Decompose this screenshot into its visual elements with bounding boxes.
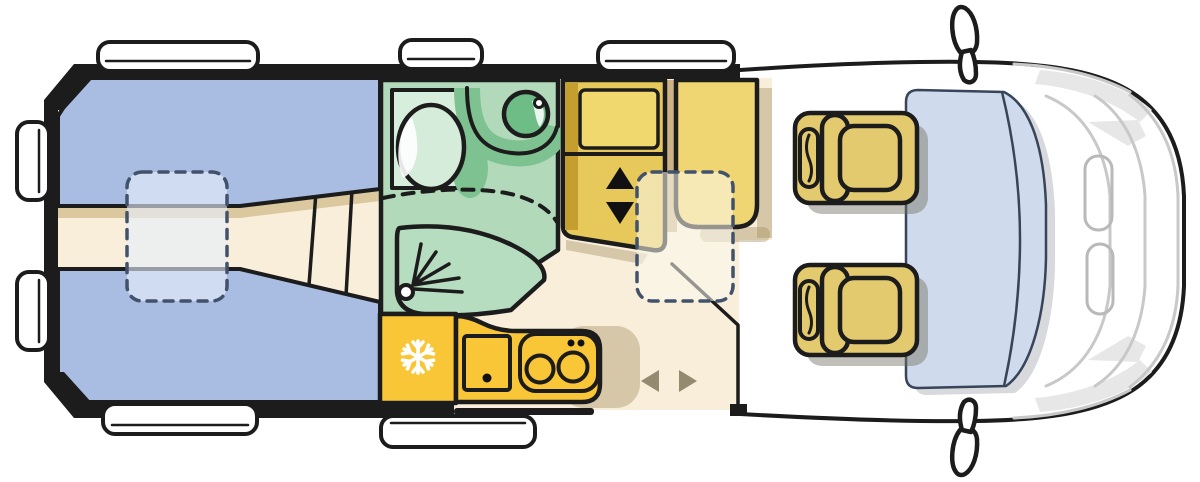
window-rear-left xyxy=(17,122,49,200)
mirror-top xyxy=(952,7,977,54)
hood-line xyxy=(1046,96,1110,386)
headlight-right xyxy=(1085,156,1112,230)
seat-cushion xyxy=(840,126,900,190)
window-rear-right xyxy=(17,272,49,350)
shower-head-icon xyxy=(399,285,413,299)
tall-locker-side xyxy=(565,83,578,230)
sliding-door-rail xyxy=(454,408,594,415)
washbasin-drain xyxy=(535,99,544,108)
window-top-wardrobe xyxy=(598,42,734,71)
window-bottom-rear xyxy=(103,404,257,434)
floor-plan xyxy=(0,0,1200,482)
mirror-top-arm xyxy=(960,50,976,82)
seat-cushion xyxy=(840,278,900,342)
door-post xyxy=(730,404,747,416)
tall-locker-panel xyxy=(580,90,658,148)
stove-knob xyxy=(578,340,585,347)
window-top-rear xyxy=(98,42,258,71)
mirror-bottom-arm xyxy=(960,400,976,432)
dashed-table-front xyxy=(637,172,733,301)
sliding-door-window xyxy=(381,416,535,447)
dashed-table-rear xyxy=(127,172,227,301)
window-top-bathroom xyxy=(400,40,482,69)
cab-seat-top xyxy=(795,113,917,203)
stove-knob xyxy=(568,340,575,347)
mirror-bottom xyxy=(952,428,977,475)
cab-seat-bottom xyxy=(795,265,917,355)
kitchen-sink-drain xyxy=(483,374,492,383)
